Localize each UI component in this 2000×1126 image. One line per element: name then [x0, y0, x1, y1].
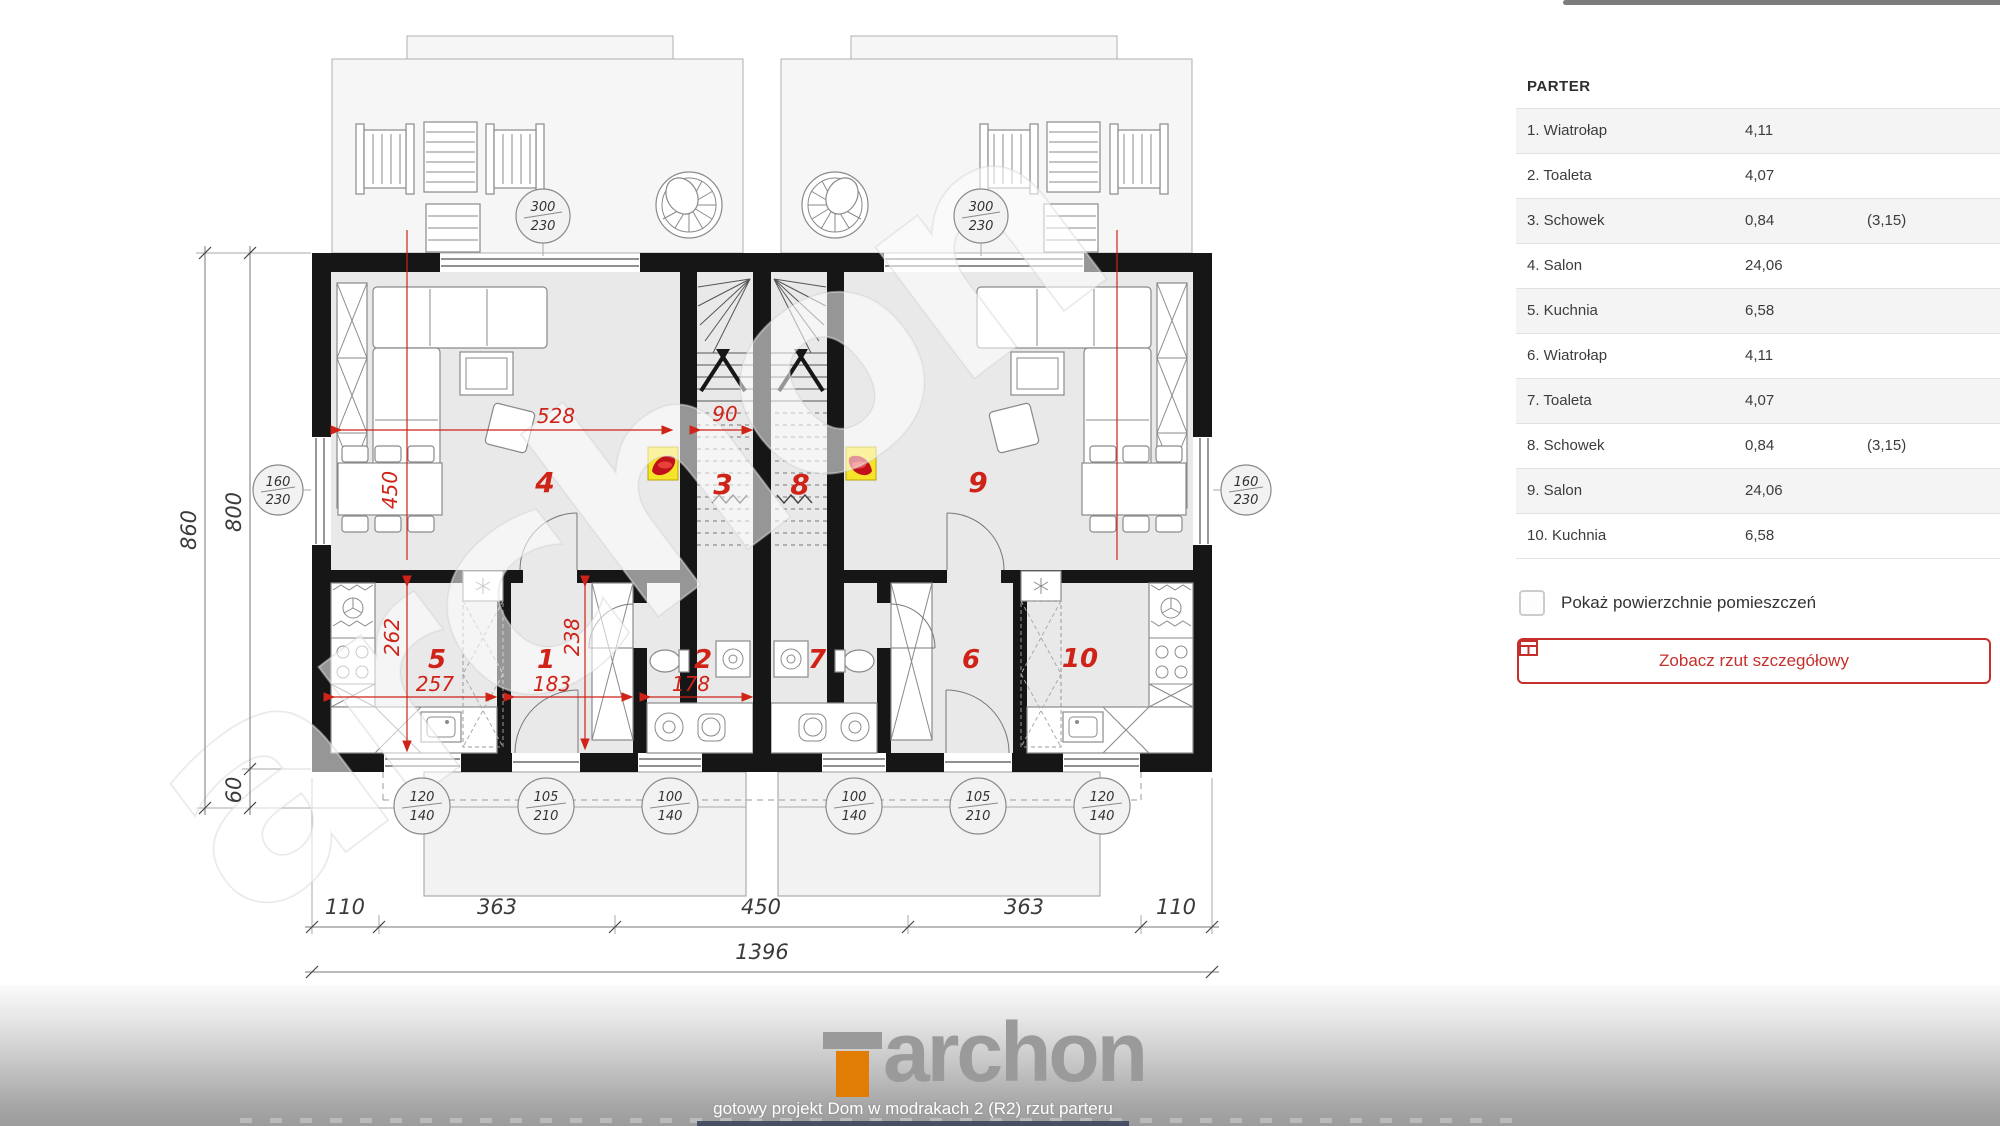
window-circle: 300 230 — [516, 189, 570, 243]
grid-plan-icon — [1519, 640, 1538, 656]
room-name: 2. Toaleta — [1527, 167, 1592, 184]
terrace-bench — [426, 204, 480, 252]
svg-text:230: 230 — [266, 493, 291, 508]
svg-text:210: 210 — [534, 809, 559, 824]
table-row: 7. Toaleta 4,07 — [1516, 378, 2000, 423]
svg-text:257: 257 — [416, 672, 454, 696]
room-area-extra: (3,15) — [1867, 437, 1906, 454]
window-circle: 120 140 — [1074, 778, 1130, 834]
room-area: 6,58 — [1745, 302, 1774, 319]
room-label-3: 3 — [713, 468, 732, 501]
room-area-extra: (3,15) — [1867, 212, 1906, 229]
svg-text:140: 140 — [658, 809, 683, 824]
svg-text:110: 110 — [325, 895, 365, 919]
logo-roof-bar — [823, 1032, 882, 1049]
window-circle: 120 140 — [394, 778, 450, 834]
svg-text:230: 230 — [969, 219, 994, 234]
room-name: 9. Salon — [1527, 482, 1582, 499]
room-label-8: 8 — [790, 468, 809, 501]
table-row: 9. Salon 24,06 — [1516, 468, 2000, 513]
svg-text:450: 450 — [378, 471, 402, 509]
room-table: 1. Wiatrołap 4,11 2. Toaleta 4,07 3. Sch… — [1516, 108, 2000, 559]
window-circle: 160 230 — [1221, 465, 1271, 515]
room-name: 6. Wiatrołap — [1527, 347, 1607, 364]
svg-text:60: 60 — [222, 777, 246, 804]
logo-wordmark: archon — [883, 1010, 1145, 1094]
svg-text:178: 178 — [672, 672, 710, 696]
terrace-armchair — [356, 124, 414, 194]
svg-text:230: 230 — [531, 219, 556, 234]
svg-text:110: 110 — [1156, 895, 1196, 919]
svg-text:210: 210 — [966, 809, 991, 824]
window-circle: 100 140 — [642, 778, 698, 834]
svg-text:528: 528 — [537, 404, 575, 428]
svg-text:1396: 1396 — [735, 940, 788, 964]
svg-text:120: 120 — [410, 790, 435, 805]
floor-title: PARTER — [1527, 78, 1591, 95]
room-label-2: 2 — [694, 645, 712, 675]
logo-orange-square — [836, 1051, 869, 1097]
room-name: 1. Wiatrołap — [1527, 122, 1607, 139]
svg-text:800: 800 — [222, 492, 246, 532]
room-label-7: 7 — [808, 645, 827, 675]
table-row: 4. Salon 24,06 — [1516, 243, 2000, 288]
svg-text:230: 230 — [1234, 493, 1259, 508]
table-row: 1. Wiatrołap 4,11 — [1516, 108, 2000, 153]
table-row: 10. Kuchnia 6,58 — [1516, 513, 2000, 559]
floor-plan: archon archon 4 3 8 9 5 1 2 7 6 10 528 9 — [0, 0, 1516, 985]
svg-text:160: 160 — [1234, 475, 1259, 490]
room-name: 7. Toaleta — [1527, 392, 1592, 409]
room-name: 3. Schowek — [1527, 212, 1605, 229]
room-area: 0,84 — [1745, 437, 1774, 454]
show-areas-checkbox[interactable] — [1519, 590, 1545, 616]
page: archon archon 4 3 8 9 5 1 2 7 6 10 528 9 — [0, 0, 2000, 1126]
table-row: 5. Kuchnia 6,58 — [1516, 288, 2000, 333]
window-circle: 105 210 — [950, 778, 1006, 834]
room-area: 24,06 — [1745, 482, 1783, 499]
window-circle: 300 230 — [954, 189, 1008, 243]
room-area: 24,06 — [1745, 257, 1783, 274]
archon-logo: archon — [823, 1032, 1133, 1102]
room-label-9: 9 — [968, 466, 987, 499]
room-area: 4,11 — [1745, 347, 1773, 364]
svg-text:120: 120 — [1090, 790, 1115, 805]
svg-text:90: 90 — [712, 402, 737, 426]
svg-text:363: 363 — [477, 895, 517, 919]
svg-text:450: 450 — [741, 895, 781, 919]
terrace-table — [424, 122, 477, 192]
room-label-5: 5 — [428, 645, 446, 675]
svg-text:300: 300 — [531, 200, 556, 215]
room-name: 10. Kuchnia — [1527, 527, 1606, 544]
show-areas-label[interactable]: Pokaż powierzchnie pomieszczeń — [1561, 593, 1816, 613]
room-label-10: 10 — [1062, 644, 1098, 674]
svg-text:183: 183 — [533, 672, 571, 696]
detailed-plan-button[interactable]: Zobacz rzut szczegółowy — [1517, 638, 1991, 684]
table-row: 2. Toaleta 4,07 — [1516, 153, 2000, 198]
svg-text:140: 140 — [842, 809, 867, 824]
room-name: 5. Kuchnia — [1527, 302, 1598, 319]
room-area: 0,84 — [1745, 212, 1774, 229]
room-label-6: 6 — [962, 645, 980, 675]
room-area: 4,07 — [1745, 167, 1774, 184]
svg-text:140: 140 — [410, 809, 435, 824]
table-row: 8. Schowek 0,84 (3,15) — [1516, 423, 2000, 468]
svg-text:300: 300 — [969, 200, 994, 215]
room-label-4: 4 — [534, 466, 554, 499]
svg-text:238: 238 — [560, 618, 584, 656]
room-area: 4,11 — [1745, 122, 1773, 139]
room-name: 4. Salon — [1527, 257, 1582, 274]
table-row: 3. Schowek 0,84 (3,15) — [1516, 198, 2000, 243]
window-circle: 105 210 — [518, 778, 574, 834]
window-circle: 100 140 — [826, 778, 882, 834]
svg-text:105: 105 — [534, 790, 559, 805]
svg-text:262: 262 — [380, 618, 404, 656]
svg-text:100: 100 — [658, 790, 683, 805]
terrace-armchair — [486, 124, 544, 194]
room-label-1: 1 — [537, 645, 555, 675]
svg-text:140: 140 — [1090, 809, 1115, 824]
svg-text:100: 100 — [842, 790, 867, 805]
svg-text:160: 160 — [266, 475, 291, 490]
table-row: 6. Wiatrołap 4,11 — [1516, 333, 2000, 378]
bottom-accent-bar — [697, 1121, 1129, 1126]
room-area: 6,58 — [1745, 527, 1774, 544]
svg-text:105: 105 — [966, 790, 991, 805]
room-area: 4,07 — [1745, 392, 1774, 409]
window-circle: 160 230 — [253, 465, 303, 515]
detailed-plan-button-label: Zobacz rzut szczegółowy — [1659, 651, 1849, 671]
project-caption: gotowy projekt Dom w modrakach 2 (R2) rz… — [413, 1099, 1413, 1119]
svg-text:860: 860 — [177, 510, 201, 550]
svg-text:363: 363 — [1004, 895, 1044, 919]
top-scrollbar[interactable] — [1563, 0, 2000, 5]
room-name: 8. Schowek — [1527, 437, 1605, 454]
